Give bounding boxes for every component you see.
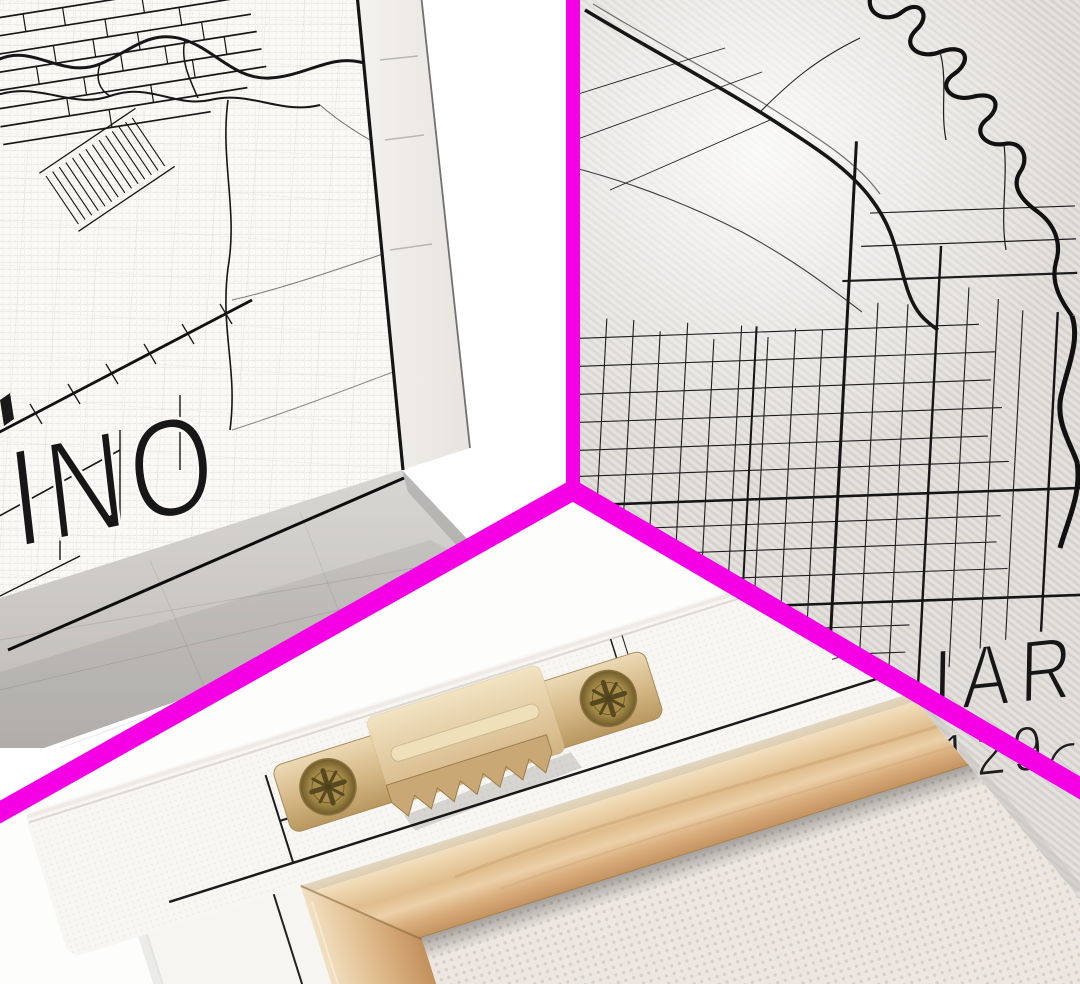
product-photo-collage: INO bbox=[0, 0, 1080, 984]
